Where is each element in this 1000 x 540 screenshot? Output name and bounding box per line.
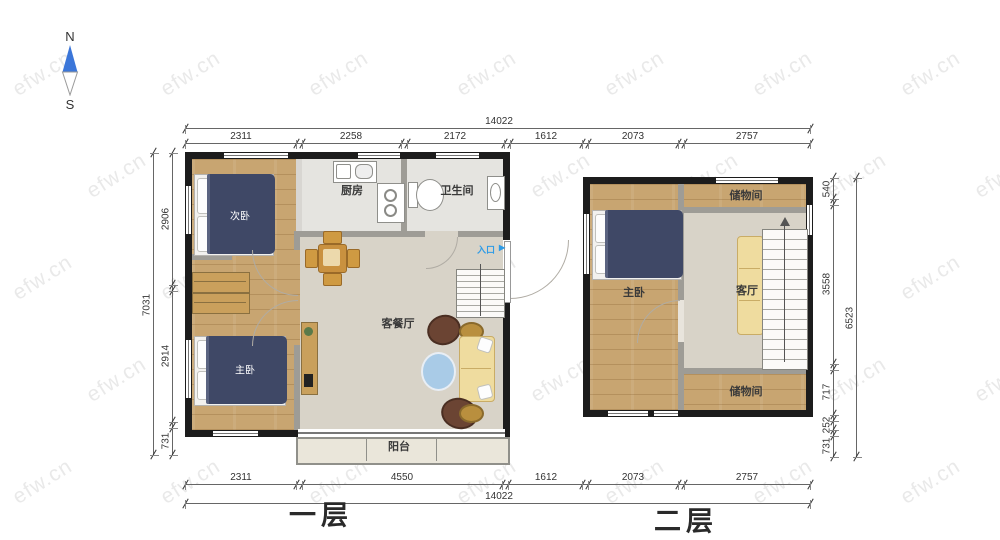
dim-line-left-segments — [172, 153, 173, 455]
plant — [304, 327, 313, 336]
dim-bottom-seg: 2757 — [736, 472, 758, 483]
dim-left-seg: 2914 — [161, 345, 172, 367]
wardrobe — [192, 272, 250, 293]
dim-top-seg: 1612 — [535, 131, 557, 142]
dining-chair — [323, 273, 342, 286]
dim-bottom-seg: 1612 — [535, 472, 557, 483]
dim-top-seg: 2172 — [444, 131, 466, 142]
floorplan-canvas: efw.cnefw.cnefw.cnefw.cnefw.cnefw.cnefw.… — [0, 0, 1000, 540]
dim-left-seg: 731 — [161, 433, 172, 450]
dim-left-seg: 2906 — [161, 208, 172, 230]
floor2-bedroom-wall-lower — [678, 342, 684, 410]
dim-bottom-seg: 4550 — [391, 472, 413, 483]
floor1-window-bottom — [213, 431, 258, 436]
dining-chair — [305, 249, 318, 268]
secondary-bedroom-label: 次卧 — [230, 208, 250, 223]
floor2-master-bedroom-label: 主卧 — [623, 284, 645, 300]
floor1-kitchen-wall — [296, 159, 302, 231]
floor2-storage-top-label: 储物间 — [730, 187, 763, 203]
floor1-window-top-kitchen — [358, 153, 400, 158]
tv — [304, 374, 313, 387]
dim-bottom-total: 14022 — [485, 491, 513, 502]
floor1-balcony-door-band — [298, 429, 505, 437]
dim-left-total: 7031 — [142, 294, 153, 316]
balcony-mullion — [366, 437, 367, 461]
floor2-living-label: 客厅 — [736, 282, 758, 298]
round-rug — [421, 352, 456, 391]
dim-line-right-total — [856, 178, 857, 457]
dim-line-bottom-segments — [185, 484, 810, 485]
dim-line-top-segments — [185, 143, 810, 144]
compass-needle-icon — [60, 44, 80, 96]
floor1-window-top-bedroom — [224, 153, 288, 158]
bathroom-sink-basin — [490, 183, 501, 202]
living-dining-label: 客餐厅 — [382, 315, 415, 331]
floor1-window-left-upper — [186, 186, 191, 234]
floor2-window-left — [584, 214, 589, 274]
floor2-storage-bottom-label: 储物间 — [730, 383, 763, 399]
dim-line-top-total — [185, 128, 810, 129]
floor2-window-top — [716, 178, 778, 183]
stairs-up-arrow-icon — [780, 217, 790, 226]
wardrobe-shelf-line — [194, 281, 246, 282]
dim-top-seg: 2311 — [230, 131, 252, 142]
floor1-title: 一层 — [289, 494, 353, 533]
kitchen-label: 厨房 — [341, 182, 363, 198]
wardrobe — [192, 293, 250, 314]
floor1-hall-wall-lower — [294, 345, 300, 430]
sofa-cushion-line — [739, 268, 760, 269]
sofa-cushion-line — [461, 368, 491, 369]
floor1-hall-wall-upper — [294, 231, 300, 250]
dining-chair — [323, 231, 342, 244]
bathroom-label: 卫生间 — [441, 182, 474, 198]
dining-table-top — [323, 249, 340, 266]
floor2-window-bottom — [654, 411, 678, 416]
dim-top-seg: 2757 — [736, 131, 758, 142]
dim-line-right-segments — [833, 178, 834, 457]
stove-burner — [384, 204, 397, 217]
floor2-bed-duvet — [605, 210, 683, 278]
dim-line-left-total — [153, 153, 154, 455]
dim-top-seg: 2073 — [622, 131, 644, 142]
master-bedroom-label: 主卧 — [235, 362, 255, 377]
sofa-cushion-line — [739, 300, 760, 301]
dim-top-total: 14022 — [485, 116, 513, 127]
floor1-kitchen-living-wall — [300, 231, 425, 237]
wardrobe-shelf-line — [194, 302, 246, 303]
floor2-stairs-centerline — [784, 226, 785, 362]
floor2-title: 二层 — [654, 500, 718, 539]
floor1-bath-living-wall — [458, 231, 503, 237]
dining-chair — [347, 249, 360, 268]
dim-top-seg: 2258 — [340, 131, 362, 142]
floor2-window-bottom — [608, 411, 648, 416]
floor2-storage-top-wall — [684, 207, 806, 213]
floor1-stairs-centerline — [480, 264, 481, 316]
balcony-mullion — [436, 437, 437, 461]
kitchen-sink-basin — [355, 164, 373, 179]
compass-north-label: N — [65, 29, 74, 44]
dim-right-seg: 731 — [822, 438, 833, 455]
compass-south-label: S — [66, 97, 75, 112]
entrance-label: 入口 — [477, 243, 495, 256]
stove-burner — [384, 189, 397, 202]
kitchen-sink-basin — [336, 164, 351, 179]
floor2-stairs — [762, 229, 808, 370]
balcony-label: 阳台 — [388, 438, 410, 454]
entrance-arrow-icon: ▶ — [499, 243, 505, 252]
dim-bottom-seg: 2311 — [230, 472, 252, 483]
dim-right-seg: 252 — [822, 417, 833, 434]
dim-right-total: 6523 — [845, 307, 856, 329]
dim-right-seg: 540 — [822, 181, 833, 198]
ottoman — [459, 404, 484, 423]
floor1-window-left-lower — [186, 340, 191, 398]
dim-bottom-seg: 2073 — [622, 472, 644, 483]
dim-right-seg: 3558 — [822, 273, 833, 295]
floor1-window-top-bathroom — [436, 153, 479, 158]
dim-right-seg: 717 — [822, 384, 833, 401]
